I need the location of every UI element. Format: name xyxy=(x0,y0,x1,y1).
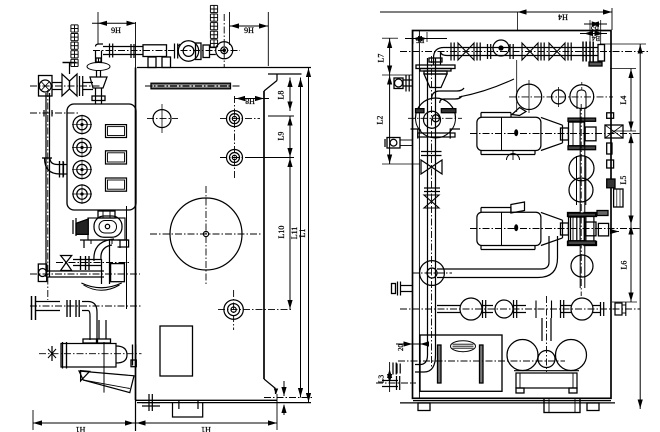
svg-text:H1: H1 xyxy=(201,425,211,432)
svg-text:L4: L4 xyxy=(619,96,628,105)
svg-text:B4: B4 xyxy=(591,34,600,42)
svg-text:L1: L1 xyxy=(298,229,307,238)
svg-text:L6: L6 xyxy=(620,261,629,270)
svg-text:H8: H8 xyxy=(245,97,255,106)
svg-text:L5: L5 xyxy=(619,176,628,185)
svg-text:L9: L9 xyxy=(277,132,286,141)
svg-text:L3: L3 xyxy=(377,375,386,384)
svg-text:H4: H4 xyxy=(558,13,568,22)
svg-text:H6: H6 xyxy=(244,26,254,35)
svg-text:L7: L7 xyxy=(377,54,386,63)
svg-text:20: 20 xyxy=(397,344,405,352)
svg-text:L10: L10 xyxy=(277,226,286,239)
svg-text:L2: L2 xyxy=(376,116,385,125)
svg-text:B5: B5 xyxy=(415,36,424,45)
svg-text:H1: H1 xyxy=(76,425,86,432)
svg-text:L8: L8 xyxy=(277,91,286,100)
svg-text:H6: H6 xyxy=(111,26,121,35)
